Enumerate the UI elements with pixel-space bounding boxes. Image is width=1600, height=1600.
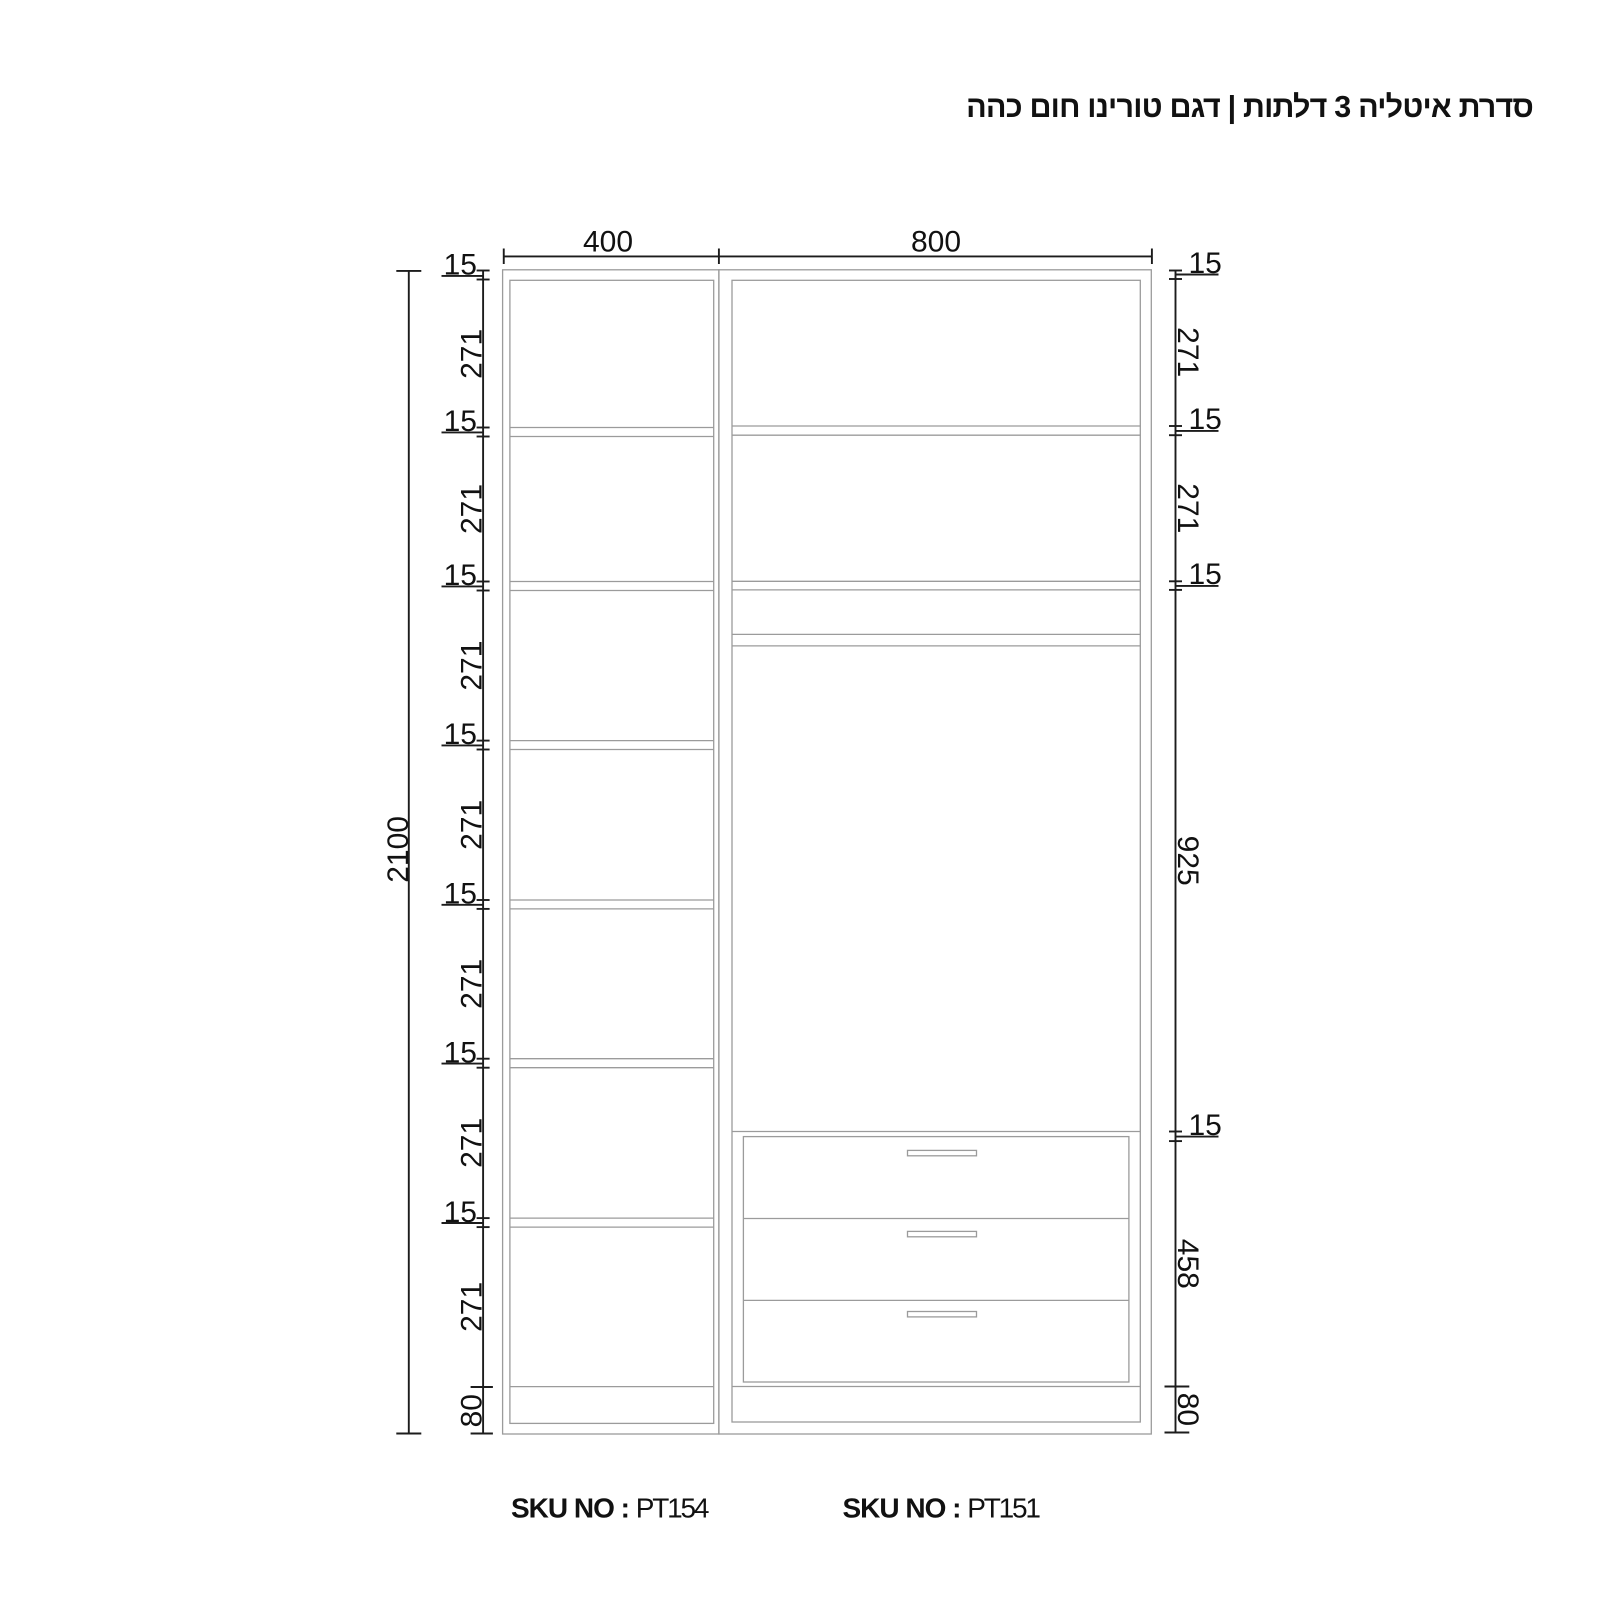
svg-text:15: 15 <box>444 878 477 911</box>
svg-text:15: 15 <box>1189 1109 1222 1142</box>
svg-text:SKU NO : PT151: SKU NO : PT151 <box>843 1493 1041 1524</box>
svg-text:15: 15 <box>1189 247 1222 280</box>
svg-text:15: 15 <box>444 405 477 438</box>
svg-text:15: 15 <box>444 1036 477 1069</box>
svg-text:458: 458 <box>1171 1239 1204 1289</box>
svg-text:15: 15 <box>444 718 477 751</box>
svg-text:15: 15 <box>444 1196 477 1229</box>
svg-text:80: 80 <box>456 1394 489 1427</box>
svg-text:80: 80 <box>1171 1393 1204 1426</box>
svg-text:271: 271 <box>456 959 489 1009</box>
svg-text:271: 271 <box>456 484 489 534</box>
svg-text:271: 271 <box>456 329 489 379</box>
svg-text:800: 800 <box>911 226 961 259</box>
svg-text:15: 15 <box>1189 403 1222 436</box>
svg-text:15: 15 <box>444 559 477 592</box>
svg-text:15: 15 <box>1189 558 1222 591</box>
svg-text:15: 15 <box>444 249 477 282</box>
svg-text:925: 925 <box>1171 836 1204 886</box>
svg-text:SKU NO : PT154: SKU NO : PT154 <box>511 1493 709 1524</box>
svg-text:271: 271 <box>456 1118 489 1168</box>
svg-text:400: 400 <box>583 226 633 259</box>
svg-text:271: 271 <box>456 1282 489 1332</box>
svg-text:271: 271 <box>456 800 489 850</box>
svg-text:271: 271 <box>1171 483 1204 533</box>
svg-text:271: 271 <box>1171 327 1204 377</box>
svg-text:271: 271 <box>456 641 489 691</box>
svg-text:2100: 2100 <box>382 816 415 883</box>
